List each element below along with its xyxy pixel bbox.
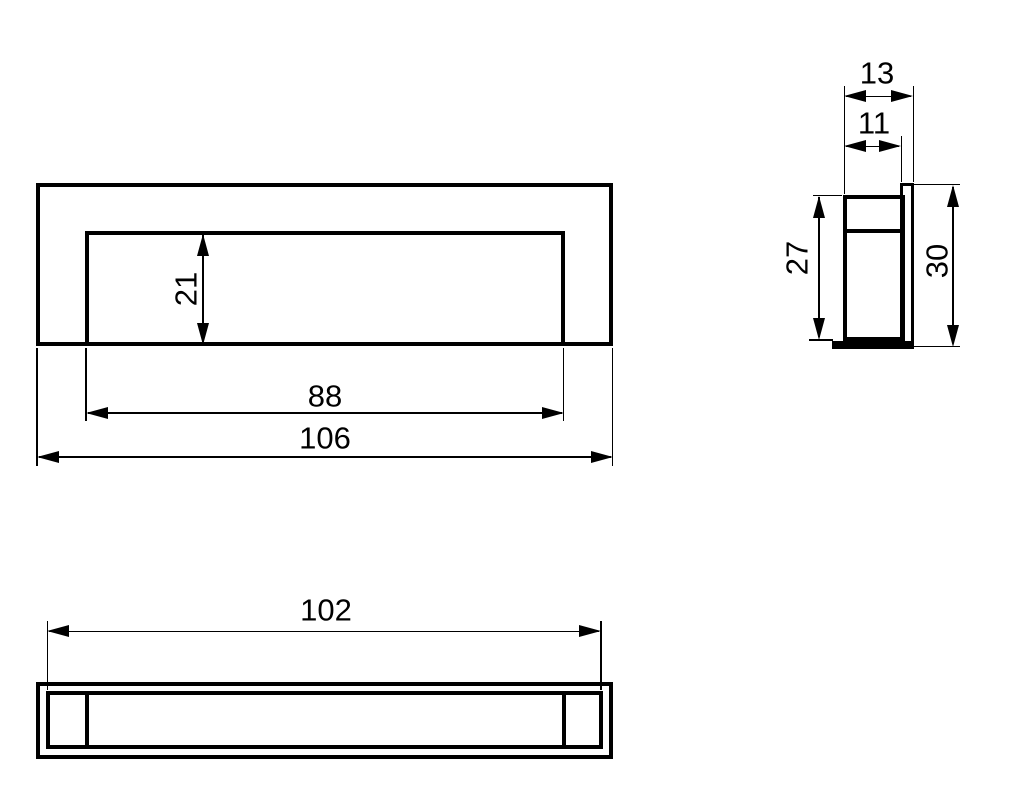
bottom-recess-outline	[46, 691, 603, 749]
dim-30-arrow-up-icon	[947, 185, 959, 207]
dim-102-arrow-left-icon	[47, 625, 69, 637]
bottom-ext-right	[600, 621, 602, 690]
dim-88-arrow-left-icon	[86, 407, 108, 419]
dim-11-label: 11	[858, 108, 890, 139]
side-front-plate-outline	[900, 183, 914, 349]
dim-30-label: 30	[922, 244, 953, 278]
dim-106-line	[39, 456, 611, 458]
dim-21-arrow-down-icon	[197, 323, 209, 345]
bottom-ext-left	[47, 621, 49, 690]
bottom-cup-edge-left-line	[85, 691, 89, 749]
front-ext-outer-left	[36, 348, 38, 466]
front-recess-outline	[85, 231, 565, 346]
dim-11-arrow-right-icon	[879, 140, 901, 152]
dim-88-label: 88	[308, 381, 342, 412]
dim-102-line	[49, 631, 599, 633]
dim-88-arrow-right-icon	[542, 407, 564, 419]
side-cup-outline	[843, 195, 905, 341]
side-ext-plate-right	[913, 86, 915, 182]
dim-13-arrow-right-icon	[891, 90, 913, 102]
dim-11-arrow-left-icon	[844, 140, 866, 152]
dim-88-line	[88, 412, 562, 414]
bottom-cup-edge-right-line	[562, 691, 566, 749]
dim-13-arrow-left-icon	[844, 90, 866, 102]
dim-102-arrow-right-icon	[579, 625, 601, 637]
side-bottom-foot	[832, 341, 914, 349]
drawing-canvas: 21 88 106 13 11	[0, 0, 1030, 798]
dim-21-label: 21	[171, 272, 202, 306]
side-ext-cup-right	[901, 136, 903, 182]
side-ext-cup-left	[844, 86, 846, 194]
dim-106-arrow-right-icon	[591, 451, 613, 463]
front-ext-outer-right	[612, 348, 614, 466]
dim-27-label: 27	[782, 241, 813, 275]
dim-106-label: 106	[299, 423, 351, 454]
dim-102-label: 102	[300, 595, 352, 626]
dim-106-arrow-left-icon	[37, 451, 59, 463]
dim-21-arrow-up-icon	[197, 234, 209, 256]
dim-13-label: 13	[860, 58, 894, 89]
dim-27-arrow-up-icon	[813, 196, 825, 218]
dim-27-arrow-down-icon	[813, 318, 825, 340]
dim-27-line	[818, 197, 820, 337]
dim-30-arrow-down-icon	[947, 325, 959, 347]
side-cup-divider-line	[843, 229, 905, 233]
